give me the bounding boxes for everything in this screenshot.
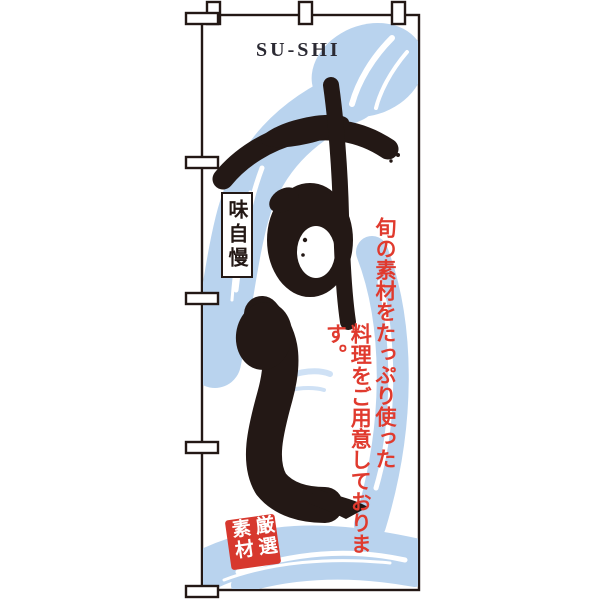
aji-jiman-badge: 味自慢 bbox=[221, 192, 253, 278]
top-tab-center bbox=[299, 2, 312, 24]
top-tab-right bbox=[392, 2, 405, 24]
side-tab-4 bbox=[186, 442, 218, 453]
gensen-sozai-seal: 厳選素材 bbox=[225, 514, 281, 570]
seasonal-tagline: 旬の素材をたっぷり使った 料理をご用意しております。 bbox=[345, 217, 397, 589]
nobori-banner-product-image: SU-SHI 味自慢 旬の素材をたっぷり使った 料理をご用意しております。 厳選… bbox=[0, 0, 600, 600]
tagline-column-1: 旬の素材をたっぷり使った bbox=[372, 217, 397, 589]
tagline-column-2: 料理をご用意しております。 bbox=[323, 323, 373, 589]
romaji-title: SU-SHI bbox=[256, 39, 341, 62]
side-tab-2 bbox=[186, 157, 218, 168]
side-tab-1 bbox=[186, 13, 218, 24]
side-tab-5 bbox=[186, 586, 218, 597]
banner-graphic bbox=[0, 0, 600, 600]
side-tab-3 bbox=[186, 293, 218, 304]
